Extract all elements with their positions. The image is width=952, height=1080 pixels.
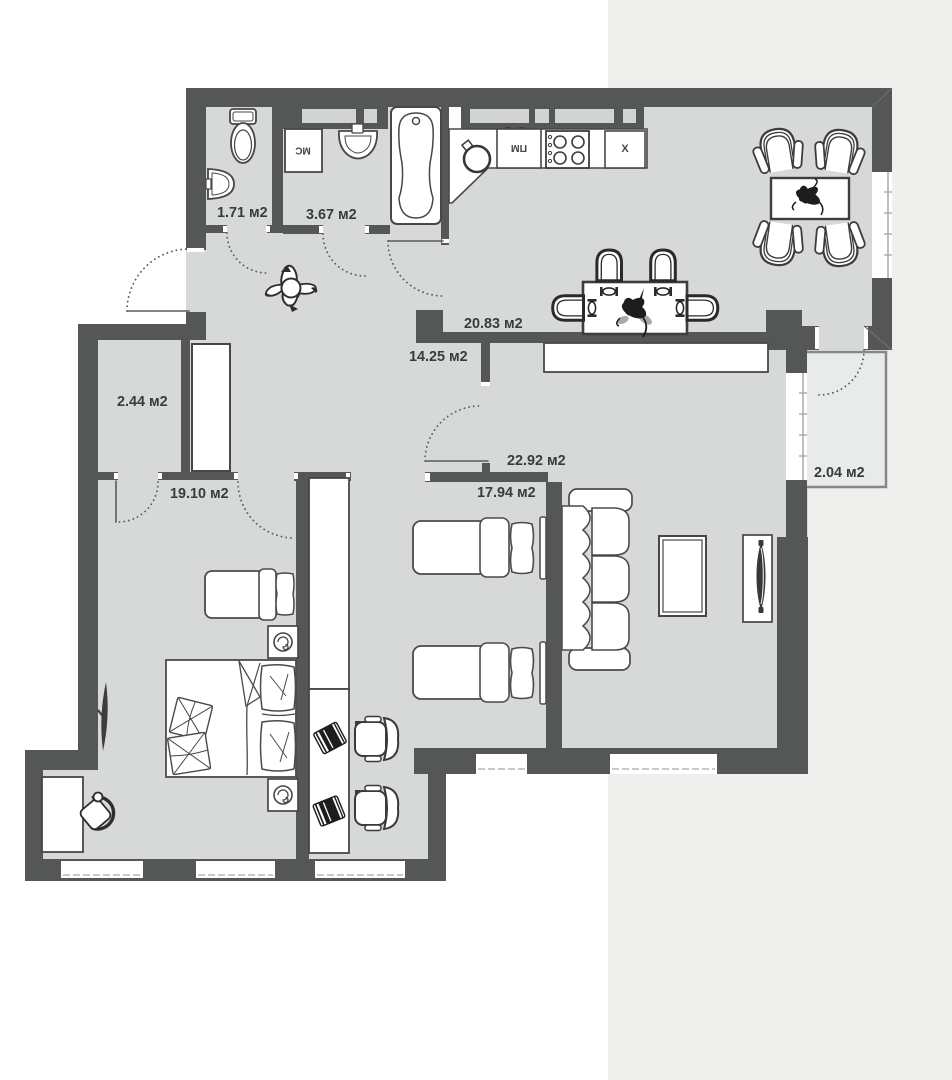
svg-text:22.92 м2: 22.92 м2 xyxy=(507,453,566,469)
svg-text:2.04 м2: 2.04 м2 xyxy=(814,465,865,481)
svg-text:X: X xyxy=(621,143,629,155)
svg-text:20.83 м2: 20.83 м2 xyxy=(464,316,523,332)
svg-text:14.25 м2: 14.25 м2 xyxy=(409,349,468,365)
svg-text:1.71 м2: 1.71 м2 xyxy=(217,205,268,221)
svg-text:19.10 м2: 19.10 м2 xyxy=(170,486,229,502)
svg-text:2.44 м2: 2.44 м2 xyxy=(117,394,168,410)
svg-text:МС: МС xyxy=(295,145,311,156)
svg-text:3.67 м2: 3.67 м2 xyxy=(306,207,357,223)
svg-text:17.94 м2: 17.94 м2 xyxy=(477,485,536,501)
svg-text:ПМ: ПМ xyxy=(511,142,528,154)
